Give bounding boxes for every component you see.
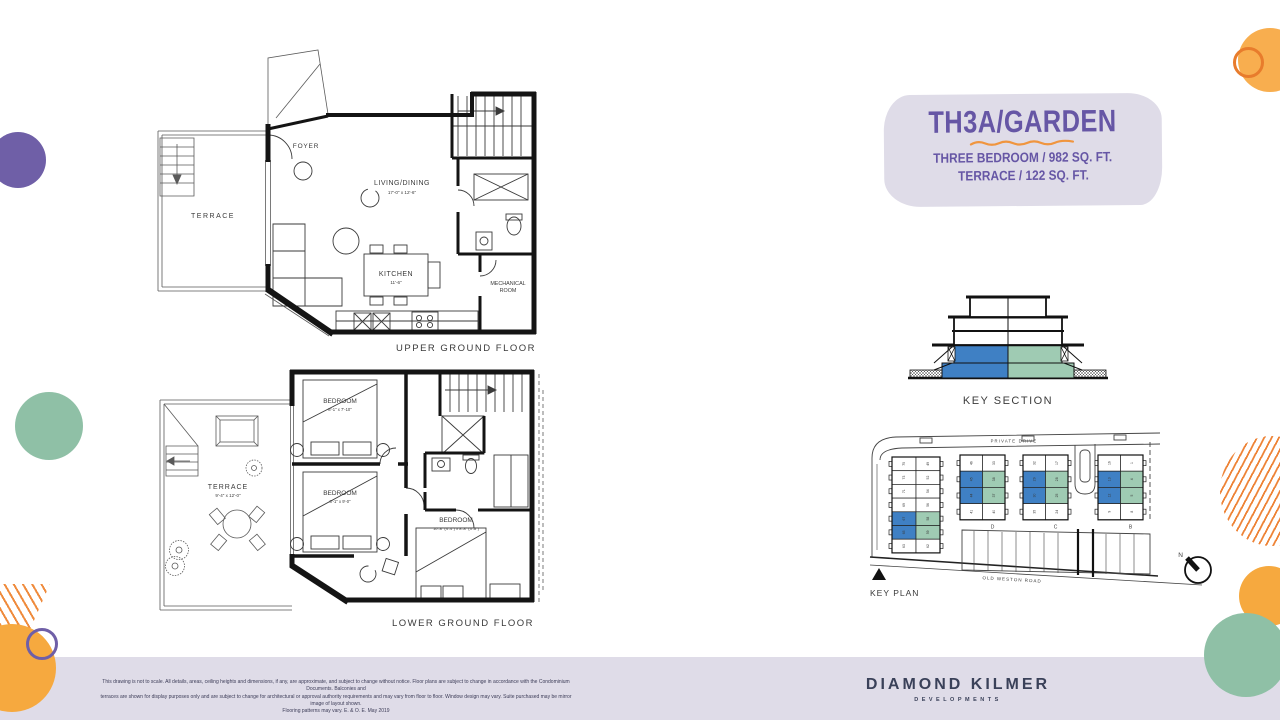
key-plan-unit-number: 73 bbox=[902, 476, 906, 480]
key-plan-unit-number: 71 bbox=[902, 489, 906, 493]
key-section-diagram bbox=[908, 283, 1108, 389]
key-plan-block-letter: B bbox=[1129, 524, 1133, 530]
key-plan-unit-number: 38 bbox=[992, 477, 996, 481]
developer-logo: DIAMOND KILMER DEVELOPMENTS bbox=[828, 676, 1088, 703]
key-plan-unit-number: 32 bbox=[1032, 461, 1036, 465]
key-plan-unit-number: 33 bbox=[992, 461, 996, 465]
lower-bed1-dims: 8'-1" x 7'-10" bbox=[328, 407, 352, 412]
key-plan-unit-number: 40 bbox=[992, 510, 996, 514]
plan-subtitle-line2: TERRACE / 122 SQ. FT. bbox=[958, 166, 1089, 185]
lower-bed1-label: BEDROOM bbox=[323, 398, 357, 405]
upper-interior-fixtures bbox=[268, 96, 534, 332]
key-plan-unit-marker bbox=[872, 568, 886, 580]
deco-ring-purple-bottom-left bbox=[26, 628, 58, 660]
key-plan-unit-number: 54 bbox=[926, 489, 930, 493]
north-label: N bbox=[1178, 552, 1183, 559]
upper-kitchen-label: KITCHEN bbox=[379, 271, 413, 278]
developer-subtitle: DEVELOPMENTS bbox=[828, 697, 1088, 703]
key-plan-unit-number: 46 bbox=[969, 461, 973, 465]
lower-bed2-label: BEDROOM bbox=[323, 490, 357, 497]
key-plan-unit-number: 59 bbox=[926, 530, 930, 534]
key-plan-unit-number: 29 bbox=[1032, 477, 1036, 481]
lower-terrace-dims: 9'-4" x 12'-0" bbox=[215, 493, 241, 498]
key-plan-unit-number: 13 bbox=[1107, 477, 1111, 481]
disclaimer-line-3: Flooring patterns may vary. E. & O. E. M… bbox=[96, 708, 576, 715]
upper-walls bbox=[267, 92, 536, 334]
key-plan-unit-number: 28 bbox=[1055, 477, 1059, 481]
upper-terrace-outline bbox=[158, 50, 329, 336]
key-plan-blocks: 7549735271546956675865596362463345384437… bbox=[889, 455, 1146, 553]
key-plan-unit-number: 25 bbox=[1055, 494, 1059, 498]
key-section-caption: KEY SECTION bbox=[908, 395, 1108, 407]
disclaimer-text: This drawing is not to scale. All detail… bbox=[96, 679, 576, 715]
disclaimer-line-2: terraces are shown for display purposes … bbox=[96, 694, 576, 709]
key-plan-unit-number: 45 bbox=[969, 477, 973, 481]
key-plan-unit-number: 30 bbox=[1032, 494, 1036, 498]
lower-bed3-dims: 10'-8" (4'-4") x 8'-8" (3'-8") bbox=[433, 526, 480, 531]
title-blob: TH3A/GARDEN THREE BEDROOM / 982 SQ. FT. … bbox=[884, 93, 1163, 207]
key-plan-unit-number: 8 bbox=[1130, 511, 1134, 513]
key-plan-unit-number: 52 bbox=[926, 476, 930, 480]
key-plan-street-bottom-label: OLD WESTON ROAD bbox=[982, 575, 1042, 583]
upper-mech-label-2: ROOM bbox=[500, 288, 517, 294]
lower-floorplan: TERRACE 9'-4" x 12'-0" BEDROOM 8'-1" x 7… bbox=[140, 360, 560, 656]
north-compass: N bbox=[1178, 552, 1211, 583]
disclaimer-line-1: This drawing is not to scale. All detail… bbox=[96, 679, 576, 694]
key-plan-unit-number: 37 bbox=[992, 494, 996, 498]
key-plan-unit-number: 65 bbox=[902, 530, 906, 534]
key-plan-unit-number: 5 bbox=[1130, 494, 1134, 496]
deco-ring-orange-top-right bbox=[1233, 47, 1264, 78]
plan-title: TH3A/GARDEN bbox=[929, 103, 1117, 141]
lower-terrace-label: TERRACE bbox=[208, 484, 248, 491]
upper-kitchen-dims: 11'-6" bbox=[390, 280, 402, 285]
upper-mech-label-1: MECHANICAL bbox=[490, 281, 525, 287]
key-plan-unit-number: 9 bbox=[1107, 511, 1111, 513]
key-plan-unit-number: 35 bbox=[1032, 510, 1036, 514]
key-plan-street-top-label: PRIVATE DRIVE bbox=[991, 439, 1038, 444]
key-plan-unit-number: 41 bbox=[969, 510, 973, 514]
lower-bed3-label: BEDROOM bbox=[439, 517, 473, 524]
deco-circle-teal-left bbox=[15, 392, 83, 460]
key-plan-unit-number: 12 bbox=[1107, 494, 1111, 498]
key-plan-unit-number: 49 bbox=[926, 462, 930, 466]
key-plan-diagram: 7549735271546956675865596362463345384437… bbox=[862, 424, 1222, 602]
key-plan-caption: KEY PLAN bbox=[870, 588, 919, 598]
lower-bed2-dims: 8'-1" x 9'-0" bbox=[329, 499, 351, 504]
deco-circle-teal-bottom-right bbox=[1204, 613, 1280, 697]
key-section-building bbox=[932, 297, 1084, 378]
key-plan-unit-number: 56 bbox=[926, 503, 930, 507]
plan-subtitle-line1: THREE BEDROOM / 982 SQ. FT. bbox=[934, 148, 1113, 167]
lower-interior-fixtures bbox=[291, 374, 529, 598]
deco-scribble-orange-right bbox=[1220, 436, 1280, 546]
key-plan-unit-number: 4 bbox=[1130, 478, 1134, 480]
key-plan-unit-number: 63 bbox=[902, 544, 906, 548]
key-plan-unit-number: 16 bbox=[1107, 461, 1111, 465]
key-plan-block-letter: C bbox=[1054, 524, 1058, 530]
key-plan-unit-number: 62 bbox=[926, 544, 930, 548]
developer-name: DIAMOND KILMER bbox=[828, 676, 1088, 694]
key-plan-block-letter: D bbox=[991, 524, 995, 530]
key-plan-unit-number: 24 bbox=[1055, 510, 1059, 514]
upper-living-label: LIVING/DINING bbox=[374, 180, 430, 187]
upper-floor-caption: UPPER GROUND FLOOR bbox=[396, 343, 536, 354]
key-plan-unit-number: 17 bbox=[1055, 461, 1059, 465]
key-plan-unit-number: 58 bbox=[926, 517, 930, 521]
key-plan-unit-number: 67 bbox=[902, 517, 906, 521]
lower-floor-caption: LOWER GROUND FLOOR bbox=[392, 618, 534, 629]
key-plan-unit-number: 44 bbox=[969, 494, 973, 498]
upper-floorplan: TERRACE FOYER LIVING/DINING 17'-0" x 12'… bbox=[140, 28, 560, 360]
key-plan-unit-number: 69 bbox=[902, 503, 906, 507]
upper-terrace-label: TERRACE bbox=[191, 213, 235, 220]
deco-circle-purple-left bbox=[0, 132, 46, 188]
upper-foyer-label: FOYER bbox=[293, 143, 319, 150]
key-plan-unit-number: 1 bbox=[1130, 462, 1134, 464]
upper-living-dims: 17'-0" x 12'-6" bbox=[388, 190, 417, 195]
key-plan-unit-number: 75 bbox=[902, 462, 906, 466]
